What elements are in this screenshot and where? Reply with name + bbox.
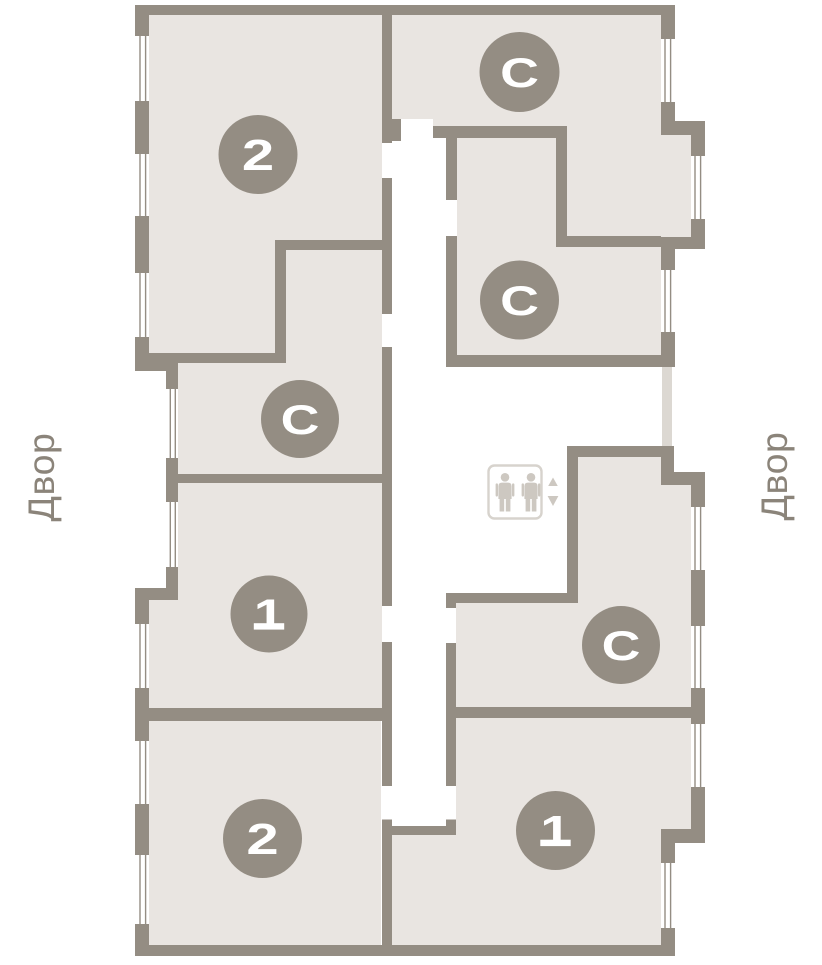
svg-text:С: С: [500, 278, 539, 325]
svg-text:Двор: Двор: [20, 432, 62, 521]
svg-text:2: 2: [242, 130, 274, 180]
svg-text:1: 1: [540, 806, 571, 855]
svg-text:2: 2: [246, 814, 278, 864]
svg-text:1: 1: [254, 590, 285, 639]
svg-text:С: С: [500, 50, 539, 97]
svg-text:С: С: [281, 397, 320, 444]
svg-text:Двор: Двор: [753, 431, 795, 520]
svg-text:С: С: [602, 623, 641, 670]
